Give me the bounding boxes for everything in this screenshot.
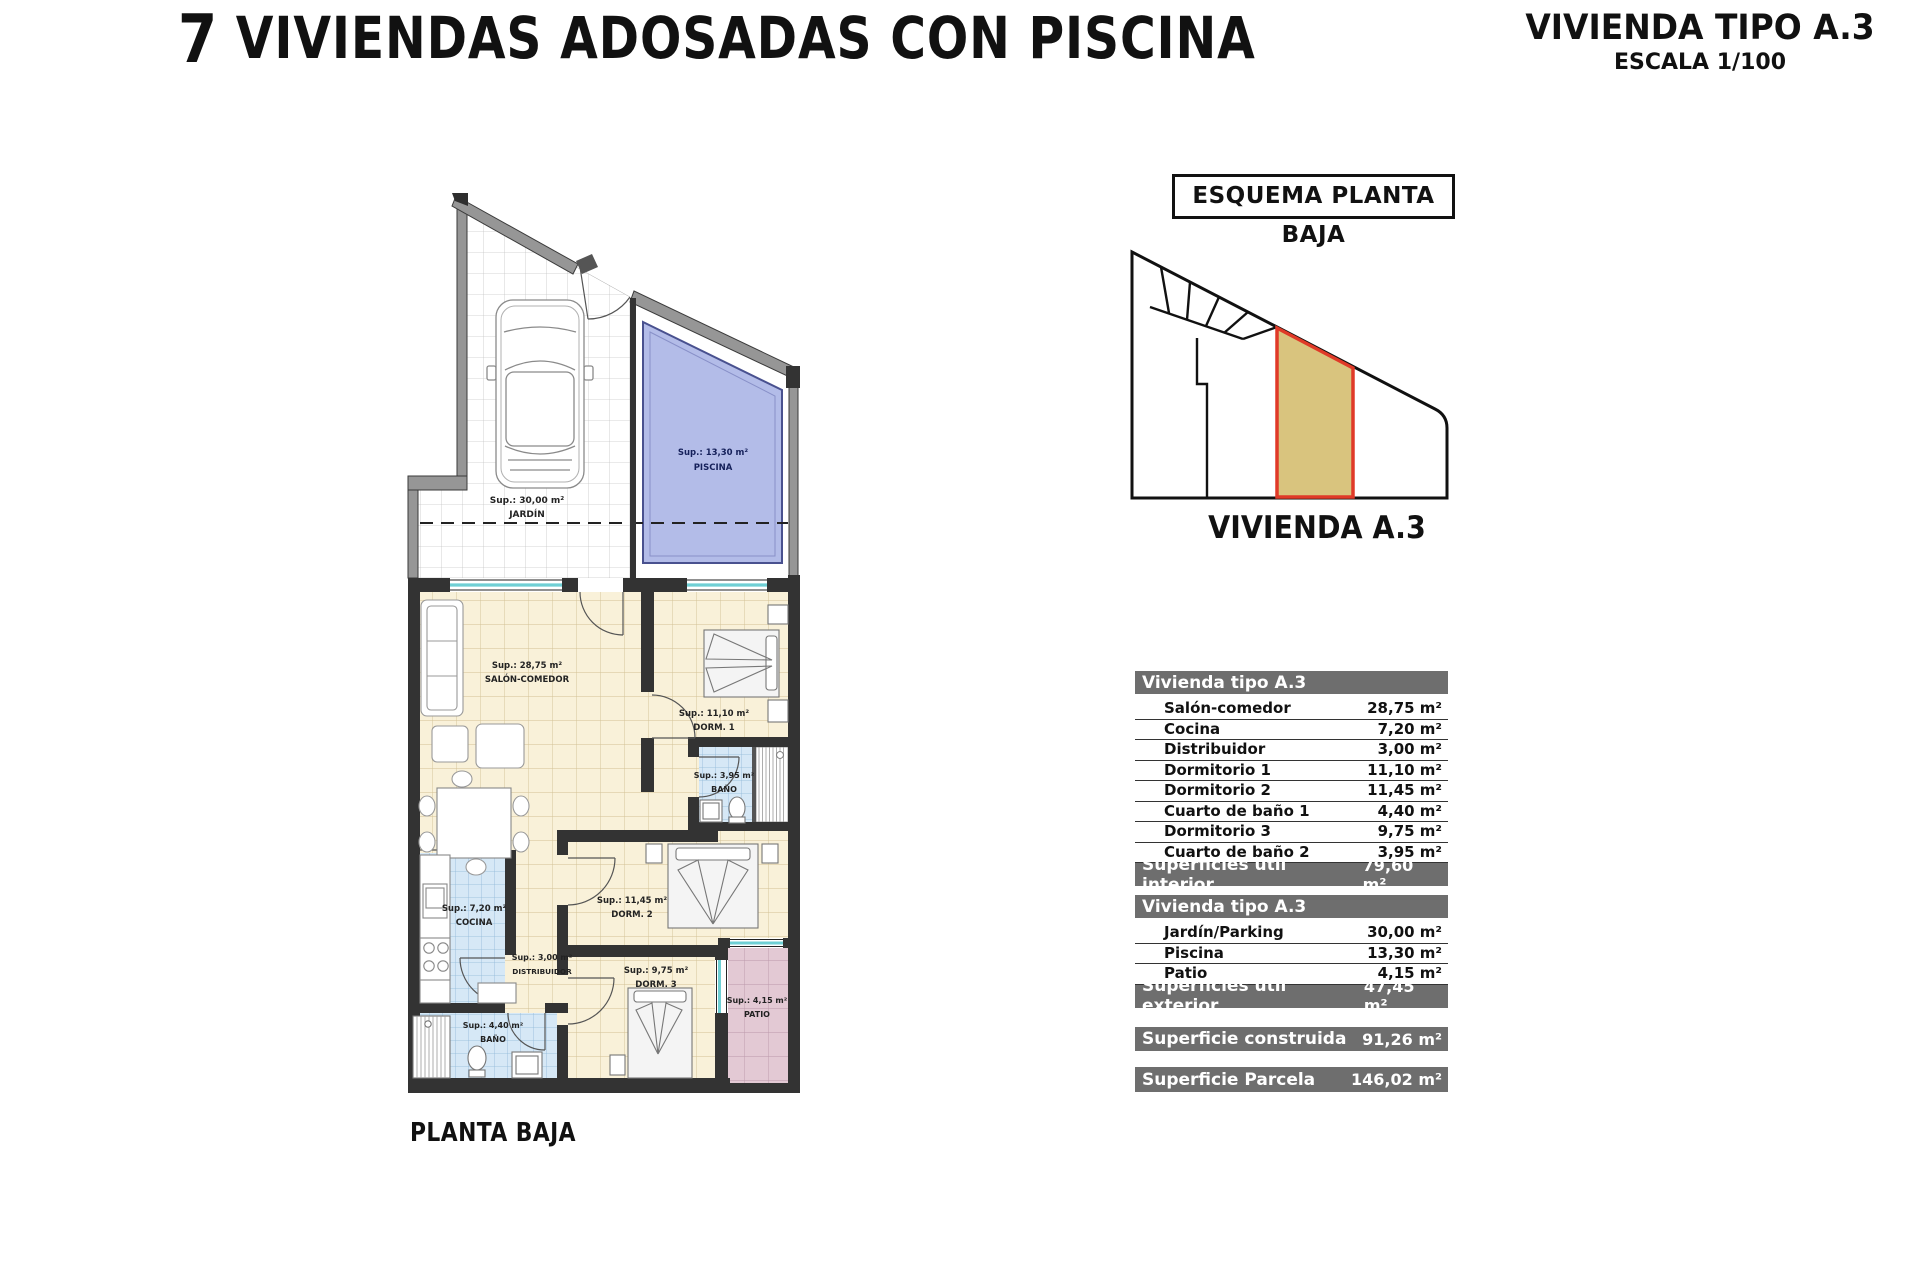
- dorm3-name: DORM. 3: [635, 980, 676, 990]
- highlighted-parcel-a3: [1277, 328, 1353, 497]
- cocina-sup: Sup.: 7,20 m²: [442, 904, 507, 914]
- page-title-number: 7: [178, 0, 218, 78]
- distribuidor-name: DISTRIBUIDOR: [512, 967, 572, 976]
- salon-name: SALÓN-COMEDOR: [485, 673, 570, 685]
- jardin-sup: Sup.: 30,00 m²: [490, 496, 564, 506]
- dorm3-sup: Sup.: 9,75 m²: [624, 966, 689, 976]
- exterior-table-header: Vivienda tipo A.3: [1135, 895, 1448, 918]
- table-row: Dormitorio 211,45 m²: [1135, 781, 1448, 802]
- interior-table-header: Vivienda tipo A.3: [1135, 671, 1448, 694]
- plan-caption: PLANTA BAJA: [410, 1118, 576, 1148]
- interior-table-footer: Superficies útil interior 79,60 m²: [1135, 863, 1448, 886]
- bano2-sup: Sup.: 4,40 m²: [463, 1021, 524, 1030]
- table-row: Salón-comedor28,75 m²: [1135, 699, 1448, 720]
- sheet-scale: ESCALA 1/100: [1495, 50, 1905, 75]
- floor-plan: Sup.: 30,00 m² JARDÍN Sup.: 13,30 m² PIS…: [405, 188, 805, 1103]
- exterior-areas-table: Vivienda tipo A.3 Jardín/Parking30,00 m²…: [1135, 895, 1448, 1008]
- interior-areas-table: Vivienda tipo A.3 Salón-comedor28,75 m² …: [1135, 671, 1448, 886]
- laundry-strip: [756, 747, 788, 822]
- page-title-text: VIVIENDAS ADOSADAS CON PISCINA: [218, 4, 1256, 72]
- patio-sup: Sup.: 4,15 m²: [727, 996, 788, 1005]
- piscina-sup: Sup.: 13,30 m²: [678, 448, 749, 458]
- bano1-name: BAÑO: [711, 784, 737, 794]
- distribuidor-sup: Sup.: 3,00 m²: [512, 953, 573, 962]
- dorm2-sup: Sup.: 11,45 m²: [597, 896, 668, 906]
- table-row: Cuarto de baño 14,40 m²: [1135, 802, 1448, 823]
- table-row: Dormitorio 39,75 m²: [1135, 822, 1448, 843]
- cocina-name: COCINA: [456, 918, 493, 928]
- patio-name: PATIO: [744, 1010, 770, 1019]
- esquema-title-box: ESQUEMA PLANTA BAJA: [1172, 174, 1455, 219]
- table-row: Cocina7,20 m²: [1135, 720, 1448, 741]
- dorm1-name: DORM. 1: [693, 723, 734, 733]
- esquema-caption: VIVIENDA A.3: [1179, 510, 1455, 546]
- dorm1-sup: Sup.: 11,10 m²: [679, 709, 750, 719]
- piscina-name: PISCINA: [694, 463, 733, 473]
- car-top-view: [487, 300, 593, 488]
- table-row: Distribuidor3,00 m²: [1135, 740, 1448, 761]
- bath1-fixtures: [700, 797, 745, 823]
- exterior-table-footer: Superficies útil exterior 47,45 m²: [1135, 985, 1448, 1008]
- bano2-name: BAÑO: [480, 1034, 506, 1044]
- table-row: Piscina13,30 m²: [1135, 944, 1448, 965]
- sheet-subtitle: VIVIENDA TIPO A.3: [1507, 8, 1892, 48]
- dorm2-name: DORM. 2: [611, 910, 652, 920]
- page-title: 7 VIVIENDAS ADOSADAS CON PISCINA: [178, 0, 1256, 78]
- built-area-bar: Superficie construida 91,26 m²: [1135, 1027, 1448, 1051]
- bano1-sup: Sup.: 3,95 m²: [694, 771, 755, 780]
- table-row: Jardín/Parking30,00 m²: [1135, 923, 1448, 944]
- site-scheme-diagram: [1120, 240, 1460, 508]
- plot-area-bar: Superficie Parcela 146,02 m²: [1135, 1067, 1448, 1092]
- salon-sup: Sup.: 28,75 m²: [492, 661, 563, 671]
- table-row: Dormitorio 111,10 m²: [1135, 761, 1448, 782]
- jardin-name: JARDÍN: [508, 508, 545, 520]
